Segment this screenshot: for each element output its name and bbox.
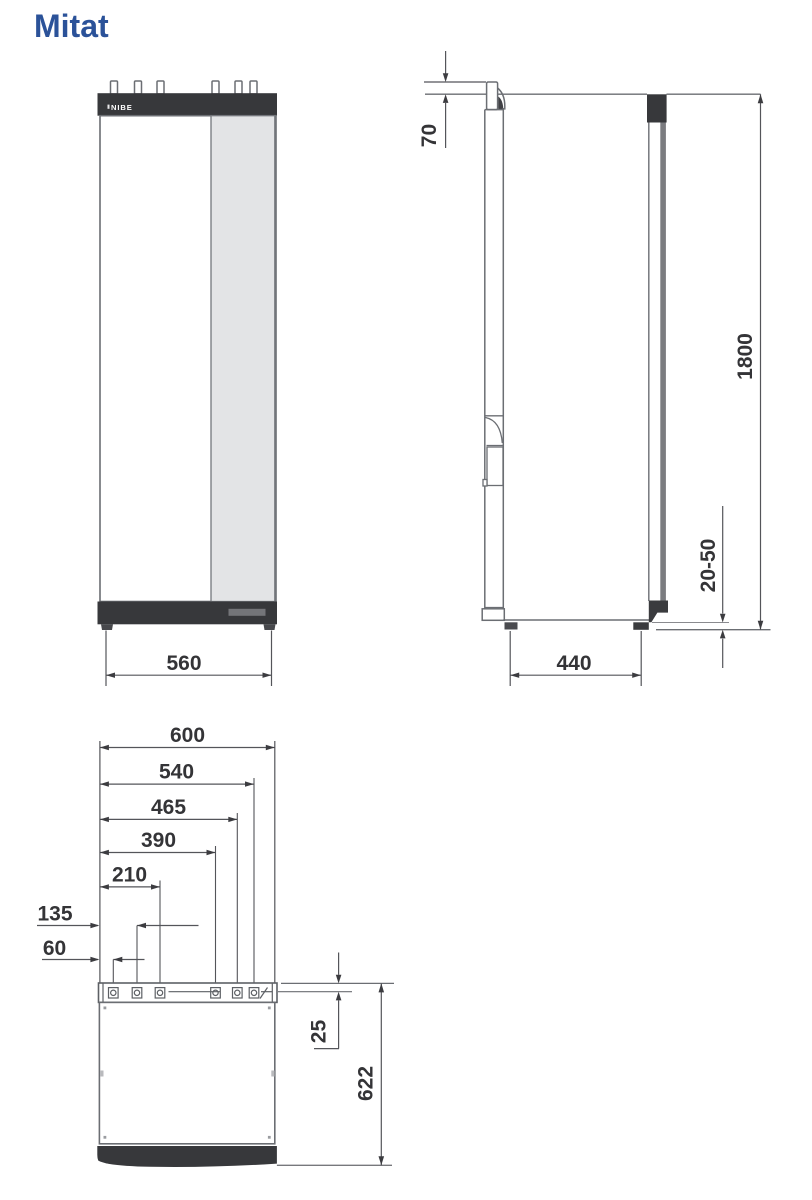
svg-text:135: 135 <box>37 903 72 926</box>
svg-text:600: 600 <box>170 724 205 747</box>
svg-text:560: 560 <box>166 652 201 675</box>
svg-text:465: 465 <box>151 796 186 819</box>
svg-text:Mitat: Mitat <box>34 8 109 44</box>
svg-text:25: 25 <box>308 1020 331 1044</box>
svg-text:NIBE: NIBE <box>111 103 133 112</box>
svg-text:210: 210 <box>112 863 147 886</box>
svg-text:20-50: 20-50 <box>697 539 720 593</box>
svg-text:540: 540 <box>159 761 194 784</box>
svg-text:70: 70 <box>418 124 441 147</box>
svg-text:1800: 1800 <box>734 333 757 380</box>
svg-text:390: 390 <box>141 829 176 852</box>
svg-text:440: 440 <box>556 652 591 675</box>
svg-text:622: 622 <box>355 1066 378 1101</box>
svg-text:60: 60 <box>43 937 66 960</box>
